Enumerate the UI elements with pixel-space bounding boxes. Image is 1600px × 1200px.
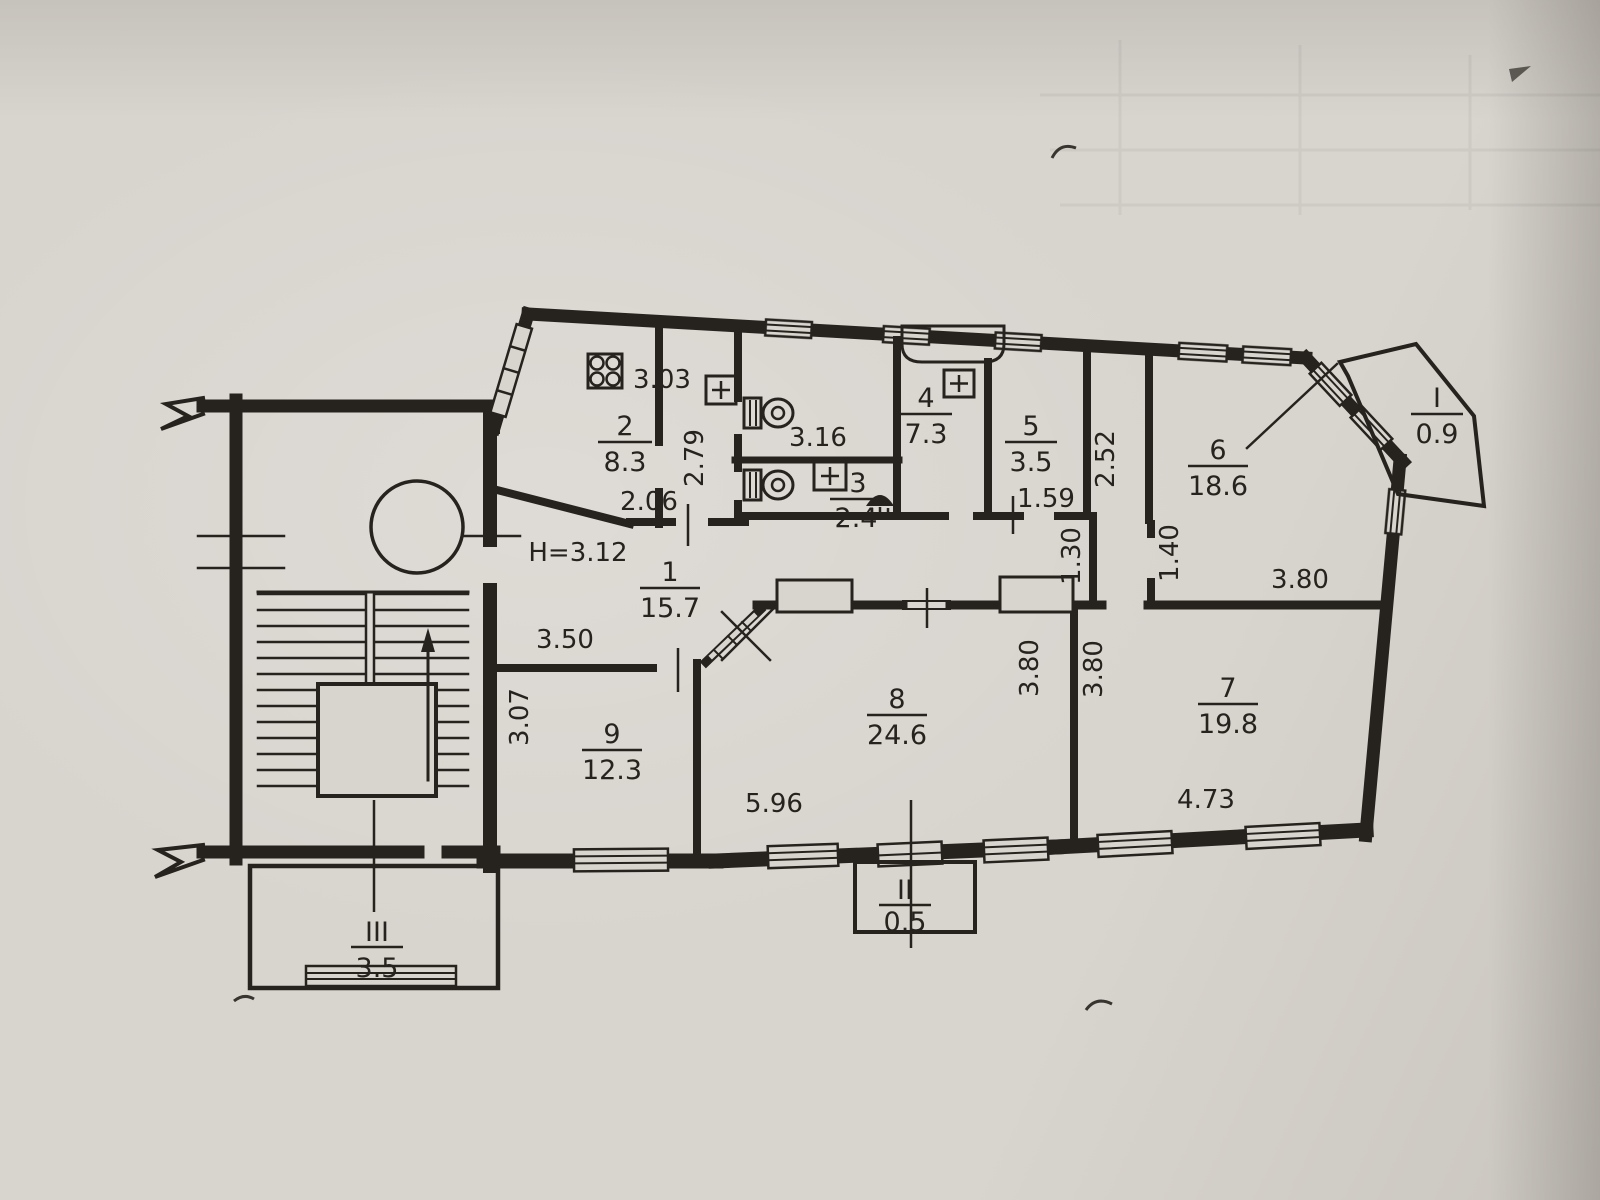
- window: [1097, 831, 1172, 857]
- balcony-III-numeral: III: [365, 917, 389, 948]
- room-2-number: 2: [616, 411, 633, 442]
- elevator-shaft-circle: [371, 481, 463, 573]
- window: [1179, 343, 1228, 362]
- window: [768, 844, 839, 868]
- sink-icon: [706, 376, 736, 404]
- door-open-cross: [722, 604, 778, 660]
- diagonal-window-top-left: [486, 312, 535, 431]
- window: [765, 319, 812, 338]
- room-4-number: 4: [917, 383, 934, 414]
- dim-closet-depth: 2.52: [1091, 430, 1121, 488]
- dim-nook-depth: 1.40: [1155, 524, 1185, 582]
- wall-break-mark-bottom: [155, 845, 203, 877]
- stray-pen-mark-top: [1052, 146, 1076, 158]
- balcony-III-area: 3.5: [356, 953, 399, 984]
- bay-wall: [1300, 353, 1409, 468]
- room-3-area: 2.4: [835, 503, 878, 534]
- dim-room9-top: 3.50: [536, 625, 594, 655]
- room-7-number: 7: [1219, 673, 1236, 704]
- dim-kitchen-edge: 2.06: [620, 487, 678, 517]
- room-5-number: 5: [1022, 411, 1039, 442]
- dim-room7-side: 3.80: [1079, 640, 1109, 698]
- stair-flights: [258, 592, 468, 796]
- stray-arrow-mark: [1509, 66, 1531, 82]
- room-6-number: 6: [1209, 435, 1226, 466]
- door-swing-line: [1247, 364, 1337, 448]
- hall-room8-diagonal-door: [706, 604, 778, 662]
- exterior-walls: [484, 306, 1409, 871]
- dim-room8-bottom: 5.96: [745, 789, 803, 819]
- room-9-number: 9: [603, 719, 620, 750]
- stray-pen-mark-bottom: [1086, 1001, 1112, 1010]
- wardrobe: [777, 580, 852, 612]
- right-wall: [1358, 459, 1408, 836]
- window: [574, 849, 668, 872]
- labels: 2 8.3 4 7.3 5 3.5 6 18.6 3 2.4 1 15.7 9 …: [351, 365, 1463, 984]
- room-8-number: 8: [888, 684, 905, 715]
- room-6-area: 18.6: [1188, 471, 1248, 502]
- dim-stove: 3.03: [633, 365, 691, 395]
- room-9-area: 12.3: [582, 755, 642, 786]
- window: [1245, 823, 1320, 849]
- sink-icon: [814, 462, 846, 490]
- balcony-II-area: 0.5: [884, 907, 927, 938]
- stairwell: [155, 398, 520, 877]
- balcony-II-numeral: II: [897, 875, 913, 906]
- room-8-area: 24.6: [867, 720, 927, 751]
- stair-well: [318, 684, 436, 796]
- dim-room6-bottom: 3.80: [1271, 565, 1329, 595]
- window: [995, 332, 1042, 351]
- dim-wc-width: 3.16: [789, 423, 847, 453]
- room-3-number: 3: [849, 468, 866, 499]
- room-5-area: 3.5: [1010, 447, 1053, 478]
- top-wall: [528, 306, 1307, 366]
- dim-room7-bottom: 4.73: [1177, 785, 1235, 815]
- dim-room8-side: 3.80: [1015, 639, 1045, 697]
- scanned-floor-plan-page: 2 8.3 4 7.3 5 3.5 6 18.6 3 2.4 1 15.7 9 …: [0, 0, 1600, 1200]
- balcony-I-numeral: I: [1433, 383, 1441, 414]
- room-7-area: 19.8: [1198, 709, 1258, 740]
- balcony-I-area: 0.9: [1416, 419, 1459, 450]
- room-1-area: 15.7: [640, 593, 700, 624]
- bottom-wall: [484, 823, 1366, 871]
- dim-nook-width: 1.30: [1057, 527, 1087, 585]
- dim-room5-width: 1.59: [1017, 484, 1075, 514]
- dim-corridor-height: 2.79: [680, 429, 710, 487]
- toilet-icon: [744, 470, 793, 500]
- room-2-area: 8.3: [604, 447, 647, 478]
- sink-icon: [944, 370, 974, 397]
- window: [984, 838, 1049, 863]
- dim-room9-side: 3.07: [505, 688, 535, 746]
- dim-ceiling-height: H=3.12: [528, 538, 627, 568]
- room-1-number: 1: [661, 557, 678, 588]
- floor-plan-drawing: 2 8.3 4 7.3 5 3.5 6 18.6 3 2.4 1 15.7 9 …: [0, 0, 1600, 1200]
- stray-pen-mark-left: [234, 996, 254, 1001]
- kitchen-bottom-wall: [497, 490, 630, 524]
- window: [1242, 346, 1291, 365]
- toilet-icon: [744, 398, 793, 428]
- window: [883, 326, 930, 345]
- room-4-area: 7.3: [905, 419, 948, 450]
- wall-axis-ticks: [198, 536, 520, 568]
- stair-arrow-head: [421, 628, 435, 652]
- stove-icon: [588, 354, 622, 388]
